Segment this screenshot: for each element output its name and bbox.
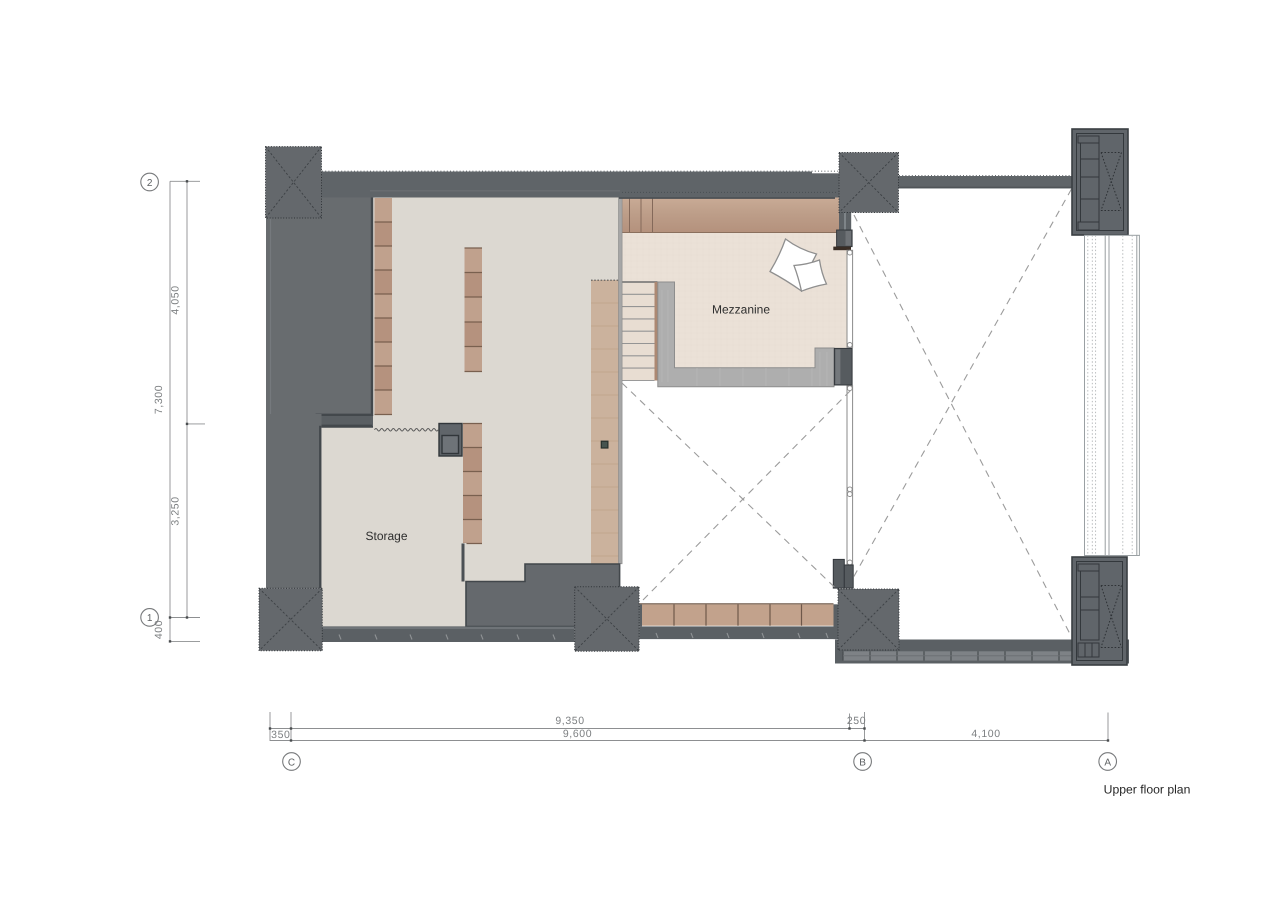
svg-text:C: C (288, 757, 295, 768)
svg-text:400: 400 (153, 620, 165, 639)
svg-text:4,100: 4,100 (971, 728, 1000, 740)
svg-text:250: 250 (847, 715, 866, 727)
svg-text:B: B (859, 757, 866, 768)
svg-text:9,350: 9,350 (555, 715, 584, 727)
svg-text:3,250: 3,250 (170, 496, 182, 525)
svg-text:350: 350 (271, 729, 290, 741)
svg-text:7,300: 7,300 (153, 385, 165, 414)
svg-text:Storage: Storage (365, 529, 407, 543)
svg-text:Upper floor plan: Upper floor plan (1104, 783, 1191, 797)
svg-text:Mezzanine: Mezzanine (712, 303, 770, 317)
svg-text:2: 2 (147, 178, 153, 189)
svg-text:A: A (1104, 757, 1111, 768)
svg-text:4,050: 4,050 (170, 285, 182, 314)
svg-text:1: 1 (147, 613, 153, 624)
svg-text:9,600: 9,600 (563, 728, 592, 740)
